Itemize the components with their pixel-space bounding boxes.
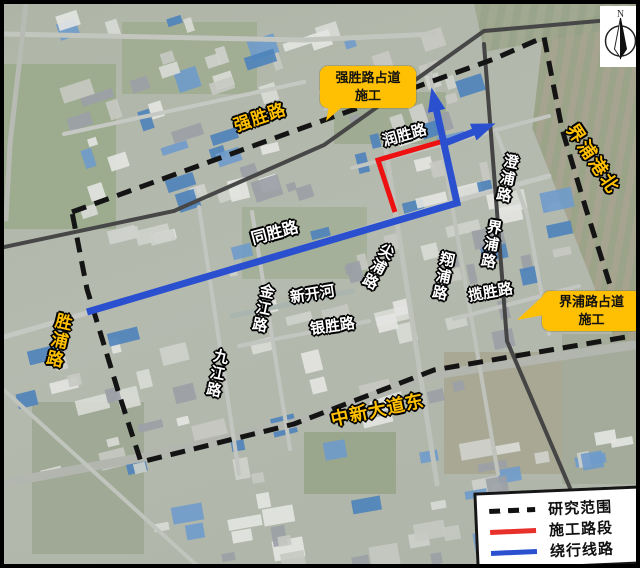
- north-arrow-icon: N: [600, 6, 640, 67]
- legend-label: 研究范围: [548, 496, 613, 520]
- callout-text-line1: 强胜路占道: [320, 69, 416, 87]
- legend-blue-line-sample: [491, 549, 537, 556]
- callout-text-line2: 施工: [542, 311, 640, 329]
- legend-dashed-line-sample: [489, 507, 535, 514]
- compass-box: N: [600, 6, 640, 67]
- callout-text-line2: 施工: [320, 87, 416, 105]
- legend-label: 施工路段: [549, 517, 614, 541]
- legend-label: 绕行线路: [550, 538, 615, 562]
- map-legend: 研究范围 施工路段 绕行线路: [473, 485, 640, 568]
- callout-qiangsheng-construction: 强胜路占道 施工: [320, 66, 416, 108]
- legend-red-line-sample: [490, 528, 536, 535]
- callout-text-line1: 界浦路占道: [542, 293, 640, 311]
- callout-jiepu-construction: 界浦路占道 施工: [542, 291, 640, 331]
- map-canvas: 润胜路 同胜路 尖浦路 翔浦路 界浦路 澄浦路 揽胜路 金江路 新开河 银胜路 …: [0, 0, 640, 568]
